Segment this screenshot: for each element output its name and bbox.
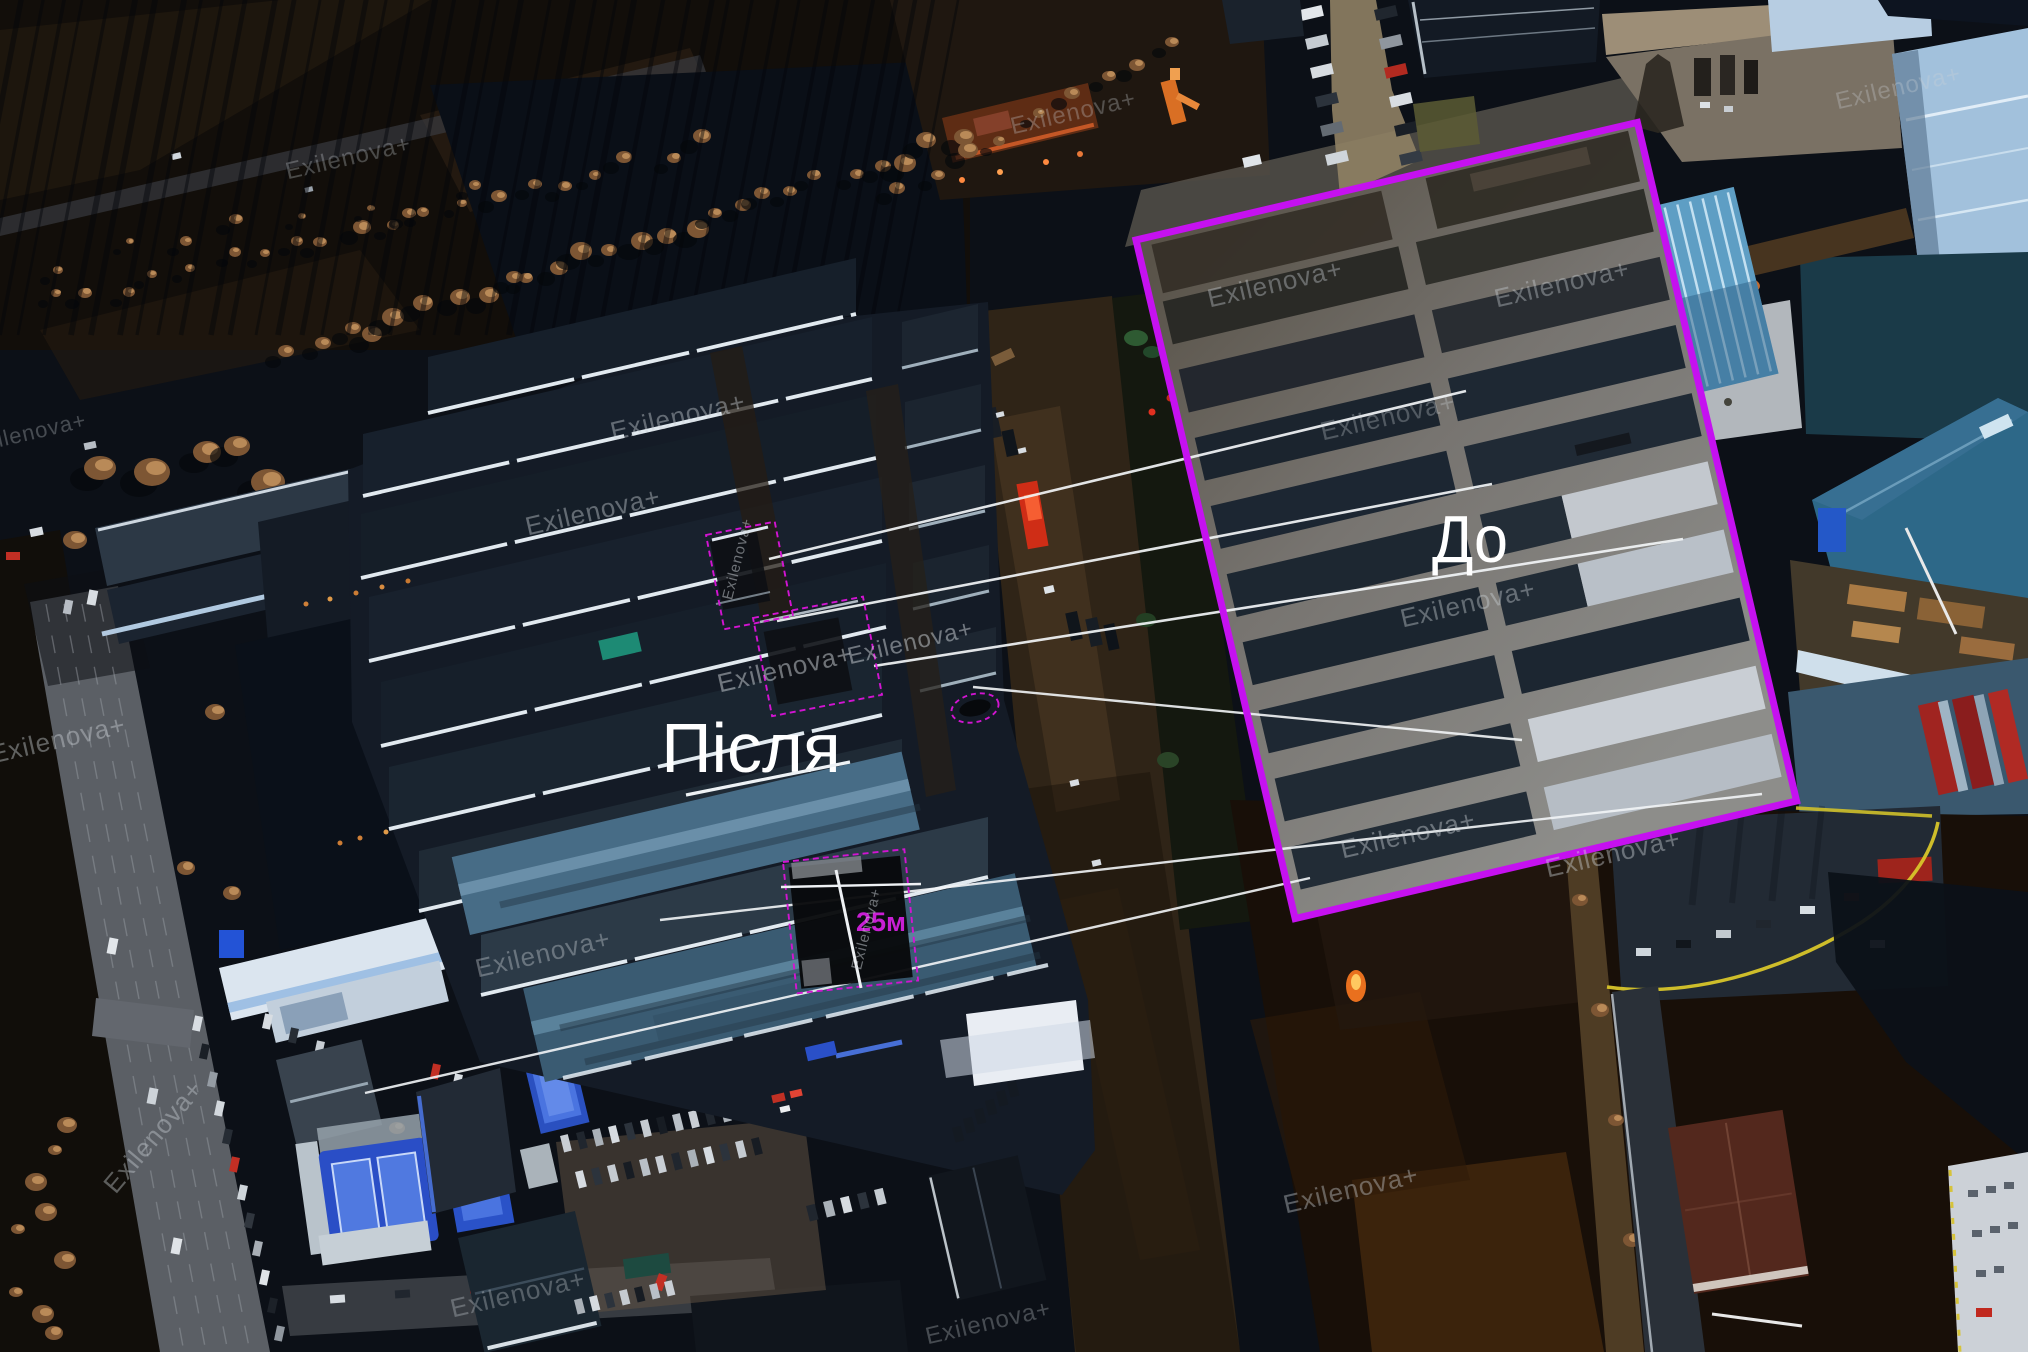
svg-text:До: До	[1432, 502, 1508, 577]
svg-text:Після: Після	[661, 709, 841, 787]
